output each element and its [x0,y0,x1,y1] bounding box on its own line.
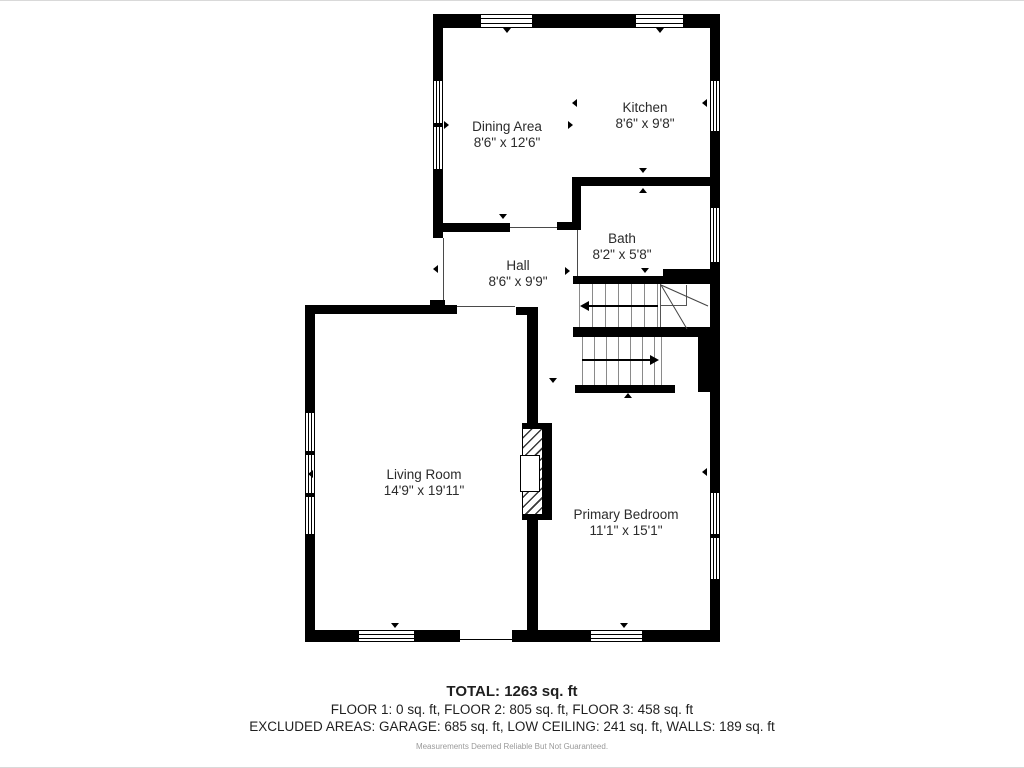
room-name: Kitchen [615,100,674,116]
wall-living-top [305,305,457,314]
stairs-down-arrow-icon [650,355,659,365]
opening-dining-hall [510,227,557,228]
room-dims: 8'6" x 12'6" [472,135,542,151]
room-label-hall: Hall 8'6" x 9'9" [488,258,547,290]
floor-areas-text: FLOOR 1: 0 sq. ft, FLOOR 2: 805 sq. ft, … [0,702,1024,717]
stairs-up-arrow-shaft [588,305,658,307]
window-bedroom-right [710,492,720,580]
room-name: Hall [488,258,547,274]
room-name: Bath [592,231,651,247]
room-dims: 8'2" x 5'8" [592,247,651,263]
excluded-areas-text: EXCLUDED AREAS: GARAGE: 685 sq. ft, LOW … [0,719,1024,734]
room-name: Dining Area [472,119,542,135]
wall-bath-left [572,177,581,223]
room-dims: 11'1" x 15'1" [573,523,678,539]
window-marker-icon [620,623,628,628]
stairs-up-arrow-icon [580,301,589,311]
opening-marker-icon [568,121,573,129]
page-top-border [0,0,1024,1]
door-marker-icon [641,268,649,273]
window-marker-icon [308,470,313,478]
opening-marker-icon [572,99,577,107]
room-label-living: Living Room 14'9" x 19'11" [384,467,465,499]
opening-marker-icon [417,308,425,313]
stairs-winder-lines [0,0,1024,768]
door-marker-icon [565,267,570,275]
fireplace-marker-icon [544,466,549,474]
opening-marker-icon [624,393,632,398]
door-marker-icon [639,168,647,173]
window-dining-left [433,80,443,170]
door-marker-icon [639,188,647,193]
window-marker-icon [391,623,399,628]
door-gap-living-exterior [460,630,512,642]
window-bath-right [710,207,720,263]
opening-hall-living [457,306,515,307]
wall-stairs-bottom [575,385,675,393]
window-bedroom-bottom [590,630,643,642]
opening-marker-icon [549,378,557,383]
window-living-bottom [358,630,415,642]
window-marker-icon [444,121,449,129]
total-area-text: TOTAL: 1263 sq. ft [0,683,1024,700]
wall-stairs-middle [573,327,712,337]
room-name: Primary Bedroom [573,507,678,523]
opening-bath-door [577,230,578,276]
room-name: Living Room [384,467,465,483]
window-kitchen-top [635,14,684,28]
room-dims: 8'6" x 9'9" [488,274,547,290]
room-label-kitchen: Kitchen 8'6" x 9'8" [615,100,674,132]
fireplace-frame-bottom [522,515,552,520]
window-marker-icon [702,468,707,476]
room-dims: 8'6" x 9'8" [615,116,674,132]
window-marker-icon [503,28,511,33]
floor-plan: Dining Area 8'6" x 12'6" Kitchen 8'6" x … [0,0,1024,768]
window-dining-top [480,14,533,28]
fireplace-firebox [520,455,540,492]
wall-bath-door-stub [557,222,581,230]
wall-stairs-right [698,337,710,392]
room-label-bath: Bath 8'2" x 5'8" [592,231,651,263]
window-marker-icon [702,99,707,107]
door-threshold-living [460,639,512,640]
wall-kitchen-bath [573,177,712,186]
opening-hall-left [443,238,444,300]
disclaimer-text: Measurements Deemed Reliable But Not Gua… [0,742,1024,751]
window-marker-icon [656,28,664,33]
stairs-down-arrow-shaft [582,359,652,361]
wall-stairs-top-thick [663,269,712,284]
room-dims: 14'9" x 19'11" [384,483,465,499]
wall-dining-hall [443,223,510,232]
door-marker-icon [499,214,507,219]
room-label-dining: Dining Area 8'6" x 12'6" [472,119,542,151]
opening-marker-icon [433,265,438,273]
room-label-bedroom: Primary Bedroom 11'1" x 15'1" [573,507,678,539]
window-kitchen-right [710,80,720,132]
